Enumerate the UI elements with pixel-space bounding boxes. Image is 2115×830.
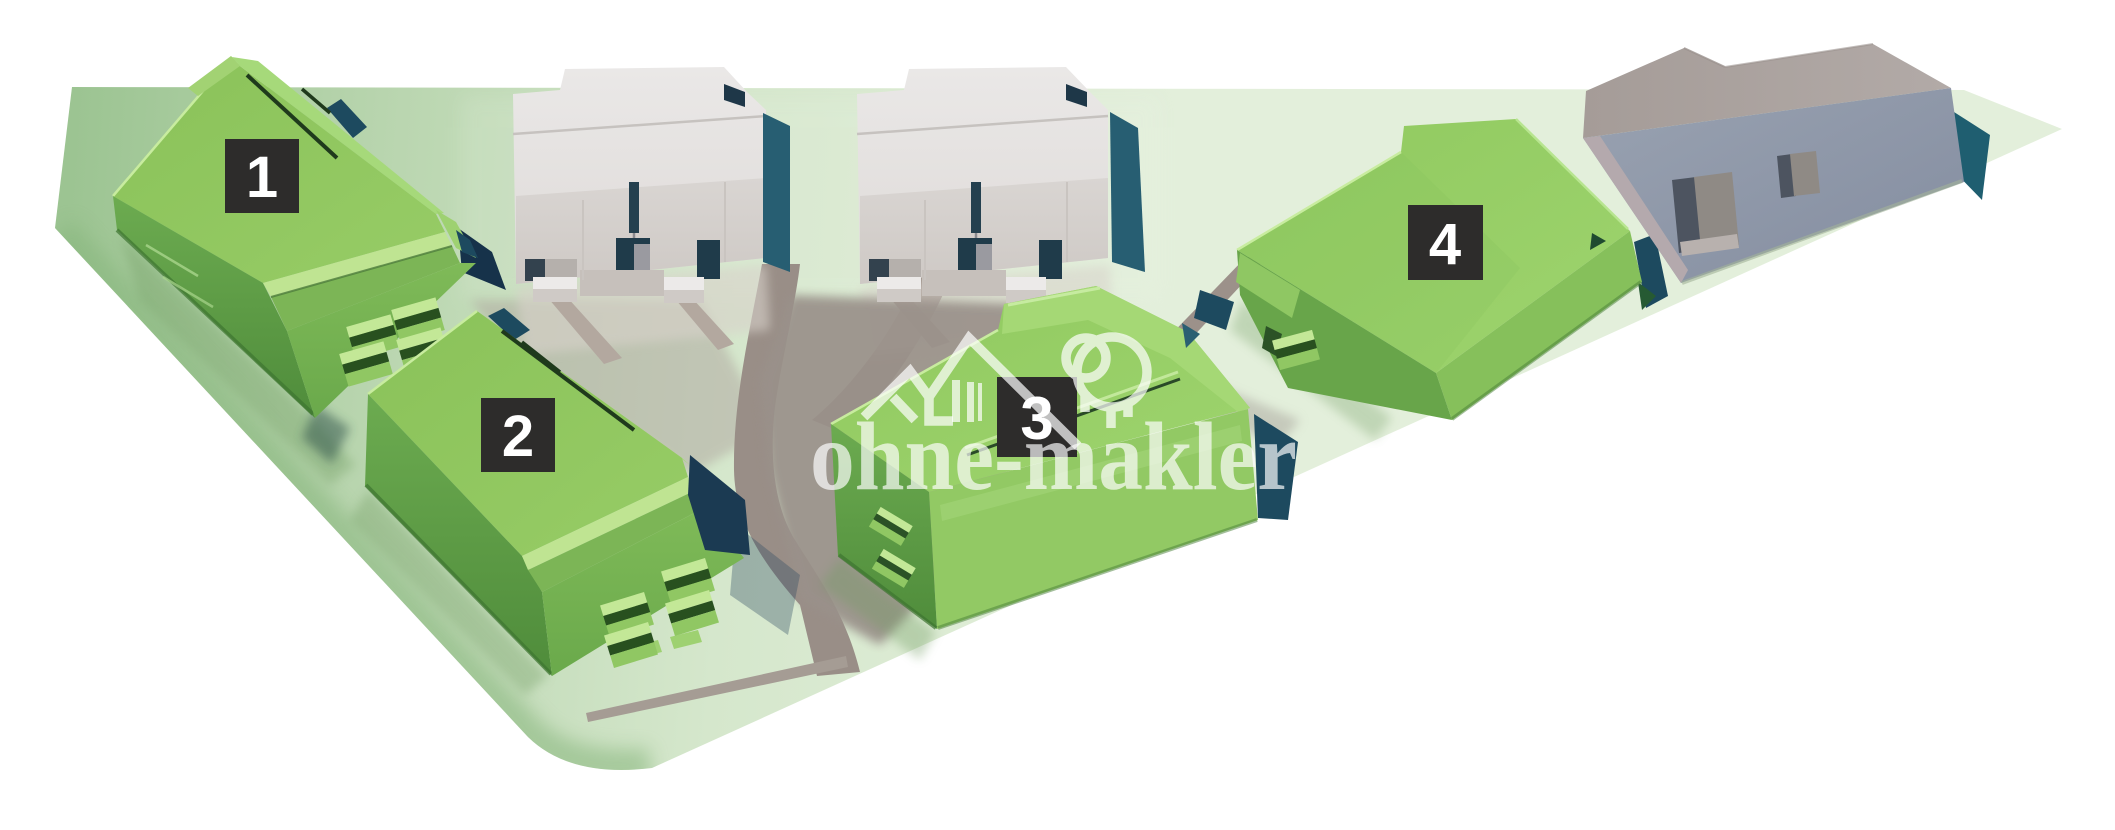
svg-text:1: 1 — [246, 145, 278, 210]
svg-text:ohne-makler: ohne-makler — [810, 403, 1297, 510]
svg-text:4: 4 — [1429, 212, 1461, 277]
svg-text:2: 2 — [502, 404, 534, 469]
